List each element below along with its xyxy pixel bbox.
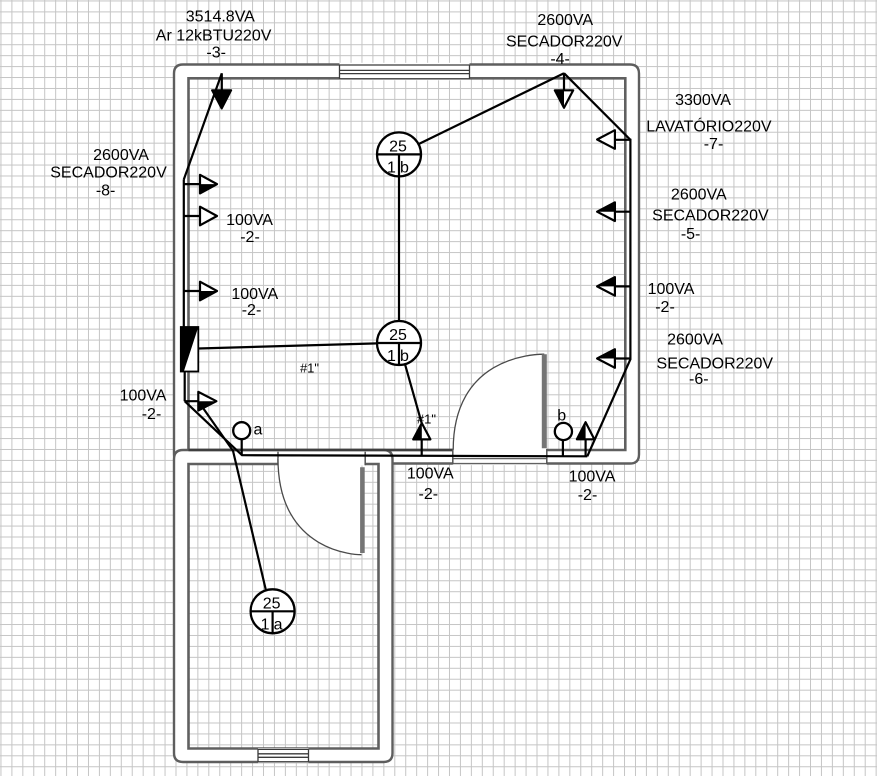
svg-text:2600VA: 2600VA [537, 12, 593, 29]
svg-text:#1": #1" [417, 412, 436, 427]
svg-text:SECADOR220V: SECADOR220V [50, 165, 167, 182]
svg-text:-2-: -2- [655, 299, 675, 316]
svg-text:-2-: -2- [240, 229, 260, 246]
svg-text:25: 25 [263, 595, 281, 612]
svg-text:100VA: 100VA [569, 469, 616, 486]
svg-text:SECADOR220V: SECADOR220V [506, 34, 623, 51]
svg-text:#1": #1" [300, 360, 319, 375]
svg-text:2600VA: 2600VA [93, 147, 149, 164]
svg-text:-3-: -3- [206, 44, 226, 61]
svg-text:b: b [557, 407, 566, 424]
svg-text:a: a [253, 422, 262, 439]
svg-text:100VA: 100VA [407, 466, 454, 483]
svg-text:-6-: -6- [689, 371, 709, 388]
svg-text:1: 1 [387, 348, 396, 365]
svg-text:3514.8VA: 3514.8VA [186, 8, 255, 25]
svg-text:SECADOR220V: SECADOR220V [657, 356, 774, 373]
svg-text:-8-: -8- [96, 183, 116, 200]
svg-text:LAVATÓRIO220V: LAVATÓRIO220V [646, 117, 772, 136]
svg-text:3300VA: 3300VA [675, 92, 731, 109]
svg-text:-5-: -5- [681, 226, 701, 243]
svg-text:2600VA: 2600VA [667, 331, 723, 348]
svg-text:SECADOR220V: SECADOR220V [652, 208, 769, 225]
svg-text:1: 1 [387, 160, 396, 177]
svg-text:b: b [400, 348, 409, 365]
svg-text:25: 25 [389, 139, 407, 156]
svg-text:-2-: -2- [419, 486, 439, 503]
svg-text:2600VA: 2600VA [671, 186, 727, 203]
svg-text:-7-: -7- [704, 136, 724, 153]
svg-text:Ar 12kBTU220V: Ar 12kBTU220V [156, 27, 272, 44]
svg-text:b: b [400, 160, 409, 177]
svg-text:a: a [274, 616, 283, 633]
svg-text:-4-: -4- [550, 51, 570, 68]
svg-text:-2-: -2- [142, 406, 162, 423]
svg-text:1: 1 [261, 616, 270, 633]
svg-text:-2-: -2- [242, 302, 262, 319]
svg-text:100VA: 100VA [231, 286, 278, 303]
svg-text:100VA: 100VA [226, 212, 273, 229]
svg-text:100VA: 100VA [120, 387, 167, 404]
svg-text:100VA: 100VA [648, 281, 695, 298]
svg-text:25: 25 [389, 327, 407, 344]
svg-text:-2-: -2- [578, 487, 598, 504]
